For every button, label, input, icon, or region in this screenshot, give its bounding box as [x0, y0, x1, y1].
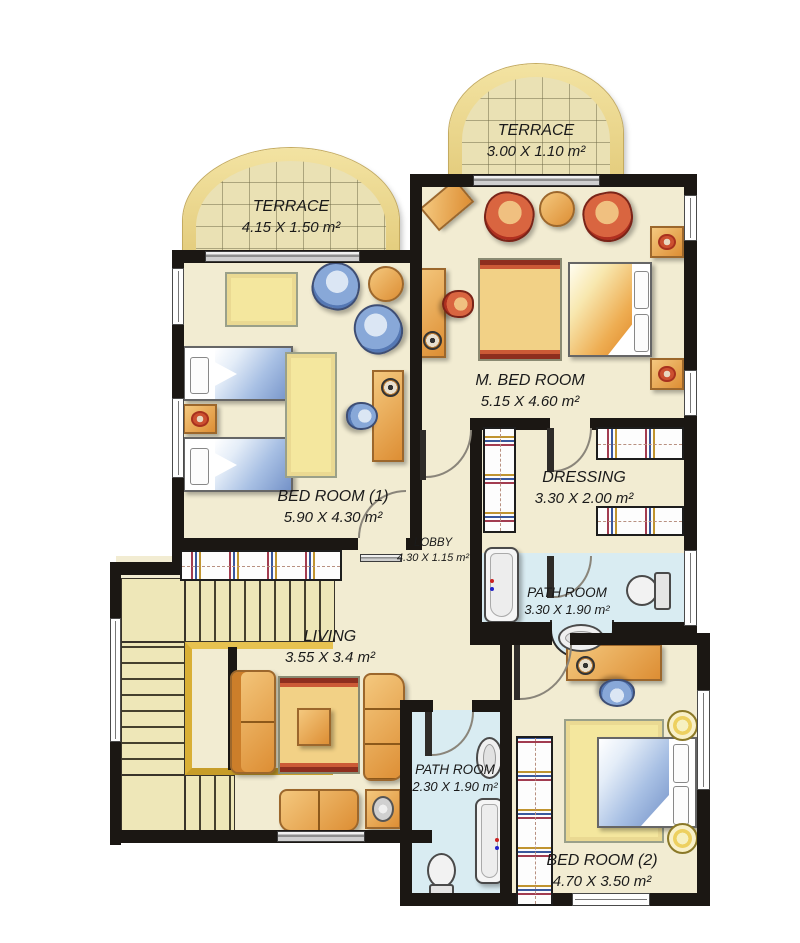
door-leaf-dressing	[547, 428, 554, 472]
floor-plan: TERRACE 4.15 X 1.50 m² TERRACE 3.00 X 1.…	[0, 0, 800, 943]
plant	[372, 796, 394, 822]
label-m-bedroom: M. BED ROOM 5.15 X 4.60 m²	[475, 371, 584, 411]
bathtub-inner	[490, 553, 513, 617]
bed-double-bedroom2	[597, 737, 697, 828]
rug-master	[478, 258, 562, 361]
desk-chair-bedroom2	[599, 679, 635, 707]
nightstand-lamp	[191, 411, 209, 427]
label-terrace-left: TERRACE 4.15 X 1.50 m²	[242, 197, 340, 237]
label-dressing: DRESSING 3.30 X 2.00 m²	[535, 468, 633, 508]
label-living: LIVING 3.55 X 3.4 m²	[285, 627, 375, 667]
window-master-right-b	[684, 370, 697, 416]
toilet-path-room-1	[626, 570, 670, 608]
cold-tap	[490, 587, 494, 591]
label-path-room-1: PATH ROOM 3.30 X 1.90 m²	[524, 584, 609, 618]
wardrobe-dressing-bottom	[596, 506, 684, 536]
bed-double-master	[568, 262, 652, 357]
path-room-2-dims: 2.30 X 1.90 m²	[412, 779, 497, 796]
bedroom-1-name: BED ROOM (1)	[277, 487, 388, 508]
door-leaf-bedroom1	[360, 554, 402, 562]
toilet-bowl	[427, 853, 456, 888]
wall-bedroom2-top-right	[570, 633, 710, 645]
rug-bedroom1-center	[285, 352, 337, 478]
plant-table	[365, 789, 401, 829]
stair-flight-left	[121, 642, 185, 775]
bedroom-2-name: BED ROOM (2)	[546, 851, 657, 872]
wall-divider-bedroom2-bath	[500, 645, 512, 905]
path-room-2-name: PATH ROOM	[412, 761, 497, 779]
sofa-living	[363, 673, 405, 781]
pillow	[190, 357, 209, 394]
lobby-name: LOBBY	[397, 536, 469, 551]
label-bedroom-2: BED ROOM (2) 4.70 X 3.50 m²	[546, 851, 657, 891]
bedroom-2-dims: 4.70 X 3.50 m²	[546, 872, 657, 892]
m-bedroom-name: M. BED ROOM	[475, 371, 584, 392]
wall-bottom-right	[400, 893, 710, 906]
lobby-dims: 4.30 X 1.15 m²	[397, 551, 469, 565]
loveseat-living	[279, 789, 359, 832]
bed-single-2	[183, 437, 293, 492]
round-table-bedroom2-top	[667, 710, 698, 741]
dressing-dims: 3.30 X 2.00 m²	[535, 489, 633, 509]
cold-tap	[495, 846, 499, 850]
path-room-1-dims: 3.30 X 1.90 m²	[524, 602, 609, 619]
sliding-door-terrace-top	[473, 175, 600, 186]
round-table-bedroom2-bottom	[667, 823, 698, 854]
terrace-left-name: TERRACE	[242, 197, 340, 218]
coffee-table	[297, 708, 331, 746]
window-pathroom1-right	[684, 550, 697, 626]
window-bedroom1-left-b	[172, 398, 184, 478]
path-room-1-name: PATH ROOM	[524, 584, 609, 602]
label-path-room-2: PATH ROOM 2.30 X 1.90 m²	[412, 761, 497, 795]
hot-tap	[490, 579, 494, 583]
sliding-door-living	[277, 831, 365, 842]
wardrobe-dressing-left	[483, 427, 516, 533]
pillow	[673, 744, 689, 783]
dressing-name: DRESSING	[535, 468, 633, 489]
nightstand-bedroom1	[183, 404, 217, 434]
nightstand-lamp	[658, 234, 676, 251]
hot-tap	[495, 838, 499, 842]
wall-bedroom1-bottom-a	[172, 538, 358, 550]
door-leaf-pathroom2	[425, 712, 432, 756]
wall-bottom-left	[110, 830, 432, 843]
desk-lamp	[381, 378, 400, 397]
wardrobe-dressing-top	[596, 427, 684, 460]
wall-stairs-top	[110, 562, 184, 575]
rug-bedroom1-top	[225, 272, 298, 327]
label-terrace-top: TERRACE 3.00 X 1.10 m²	[487, 121, 585, 161]
terrace-left-dims: 4.15 X 1.50 m²	[242, 218, 340, 238]
desk-lamp	[423, 331, 442, 350]
nightstand-master-bottom	[650, 358, 684, 390]
pillow	[673, 786, 689, 825]
living-name: LIVING	[285, 627, 375, 648]
stair-landing-bottom	[121, 775, 185, 837]
bathtub-path-room-1	[484, 547, 519, 623]
desk-chair-bedroom1	[346, 402, 378, 430]
terrace-top-dims: 3.00 X 1.10 m²	[487, 142, 585, 162]
wall-pathroom2-left	[400, 700, 412, 905]
desk-chair-master	[442, 290, 474, 318]
nightstand-lamp	[658, 366, 676, 383]
pillow	[634, 314, 649, 352]
stair-flight-bottom	[185, 775, 235, 837]
wardrobe-bedroom1	[180, 550, 342, 581]
label-lobby: LOBBY 4.30 X 1.15 m²	[397, 536, 469, 565]
window-master-right-a	[684, 195, 697, 241]
label-bedroom-1: BED ROOM (1) 5.90 X 4.30 m²	[277, 487, 388, 527]
terrace-top-name: TERRACE	[487, 121, 585, 142]
wall-lobby-right	[470, 418, 482, 638]
bedroom-1-dims: 5.90 X 4.30 m²	[277, 508, 388, 528]
window-bedroom2-right	[697, 690, 710, 790]
desk-lamp	[576, 656, 595, 675]
toilet-tank	[654, 572, 671, 610]
stair-landing-top	[121, 578, 185, 642]
m-bedroom-dims: 5.15 X 4.60 m²	[475, 392, 584, 412]
window-bedroom1-left-a	[172, 268, 184, 325]
armchair-living	[230, 670, 276, 774]
window-stairs	[110, 618, 121, 742]
round-table-master	[539, 191, 575, 227]
pillow	[634, 271, 649, 309]
sliding-door-terrace-left	[205, 251, 360, 262]
wall-bedroom2-top-left	[470, 633, 518, 645]
nightstand-master-top	[650, 226, 684, 258]
wall-divider-bedrooms	[410, 174, 422, 420]
pillow	[190, 448, 209, 485]
bed-single-1	[183, 346, 293, 401]
wall-pathroom2-top-a	[400, 700, 433, 712]
window-bedroom2-bottom	[572, 893, 650, 906]
stool-round	[368, 266, 404, 302]
living-dims: 3.55 X 3.4 m²	[285, 648, 375, 668]
